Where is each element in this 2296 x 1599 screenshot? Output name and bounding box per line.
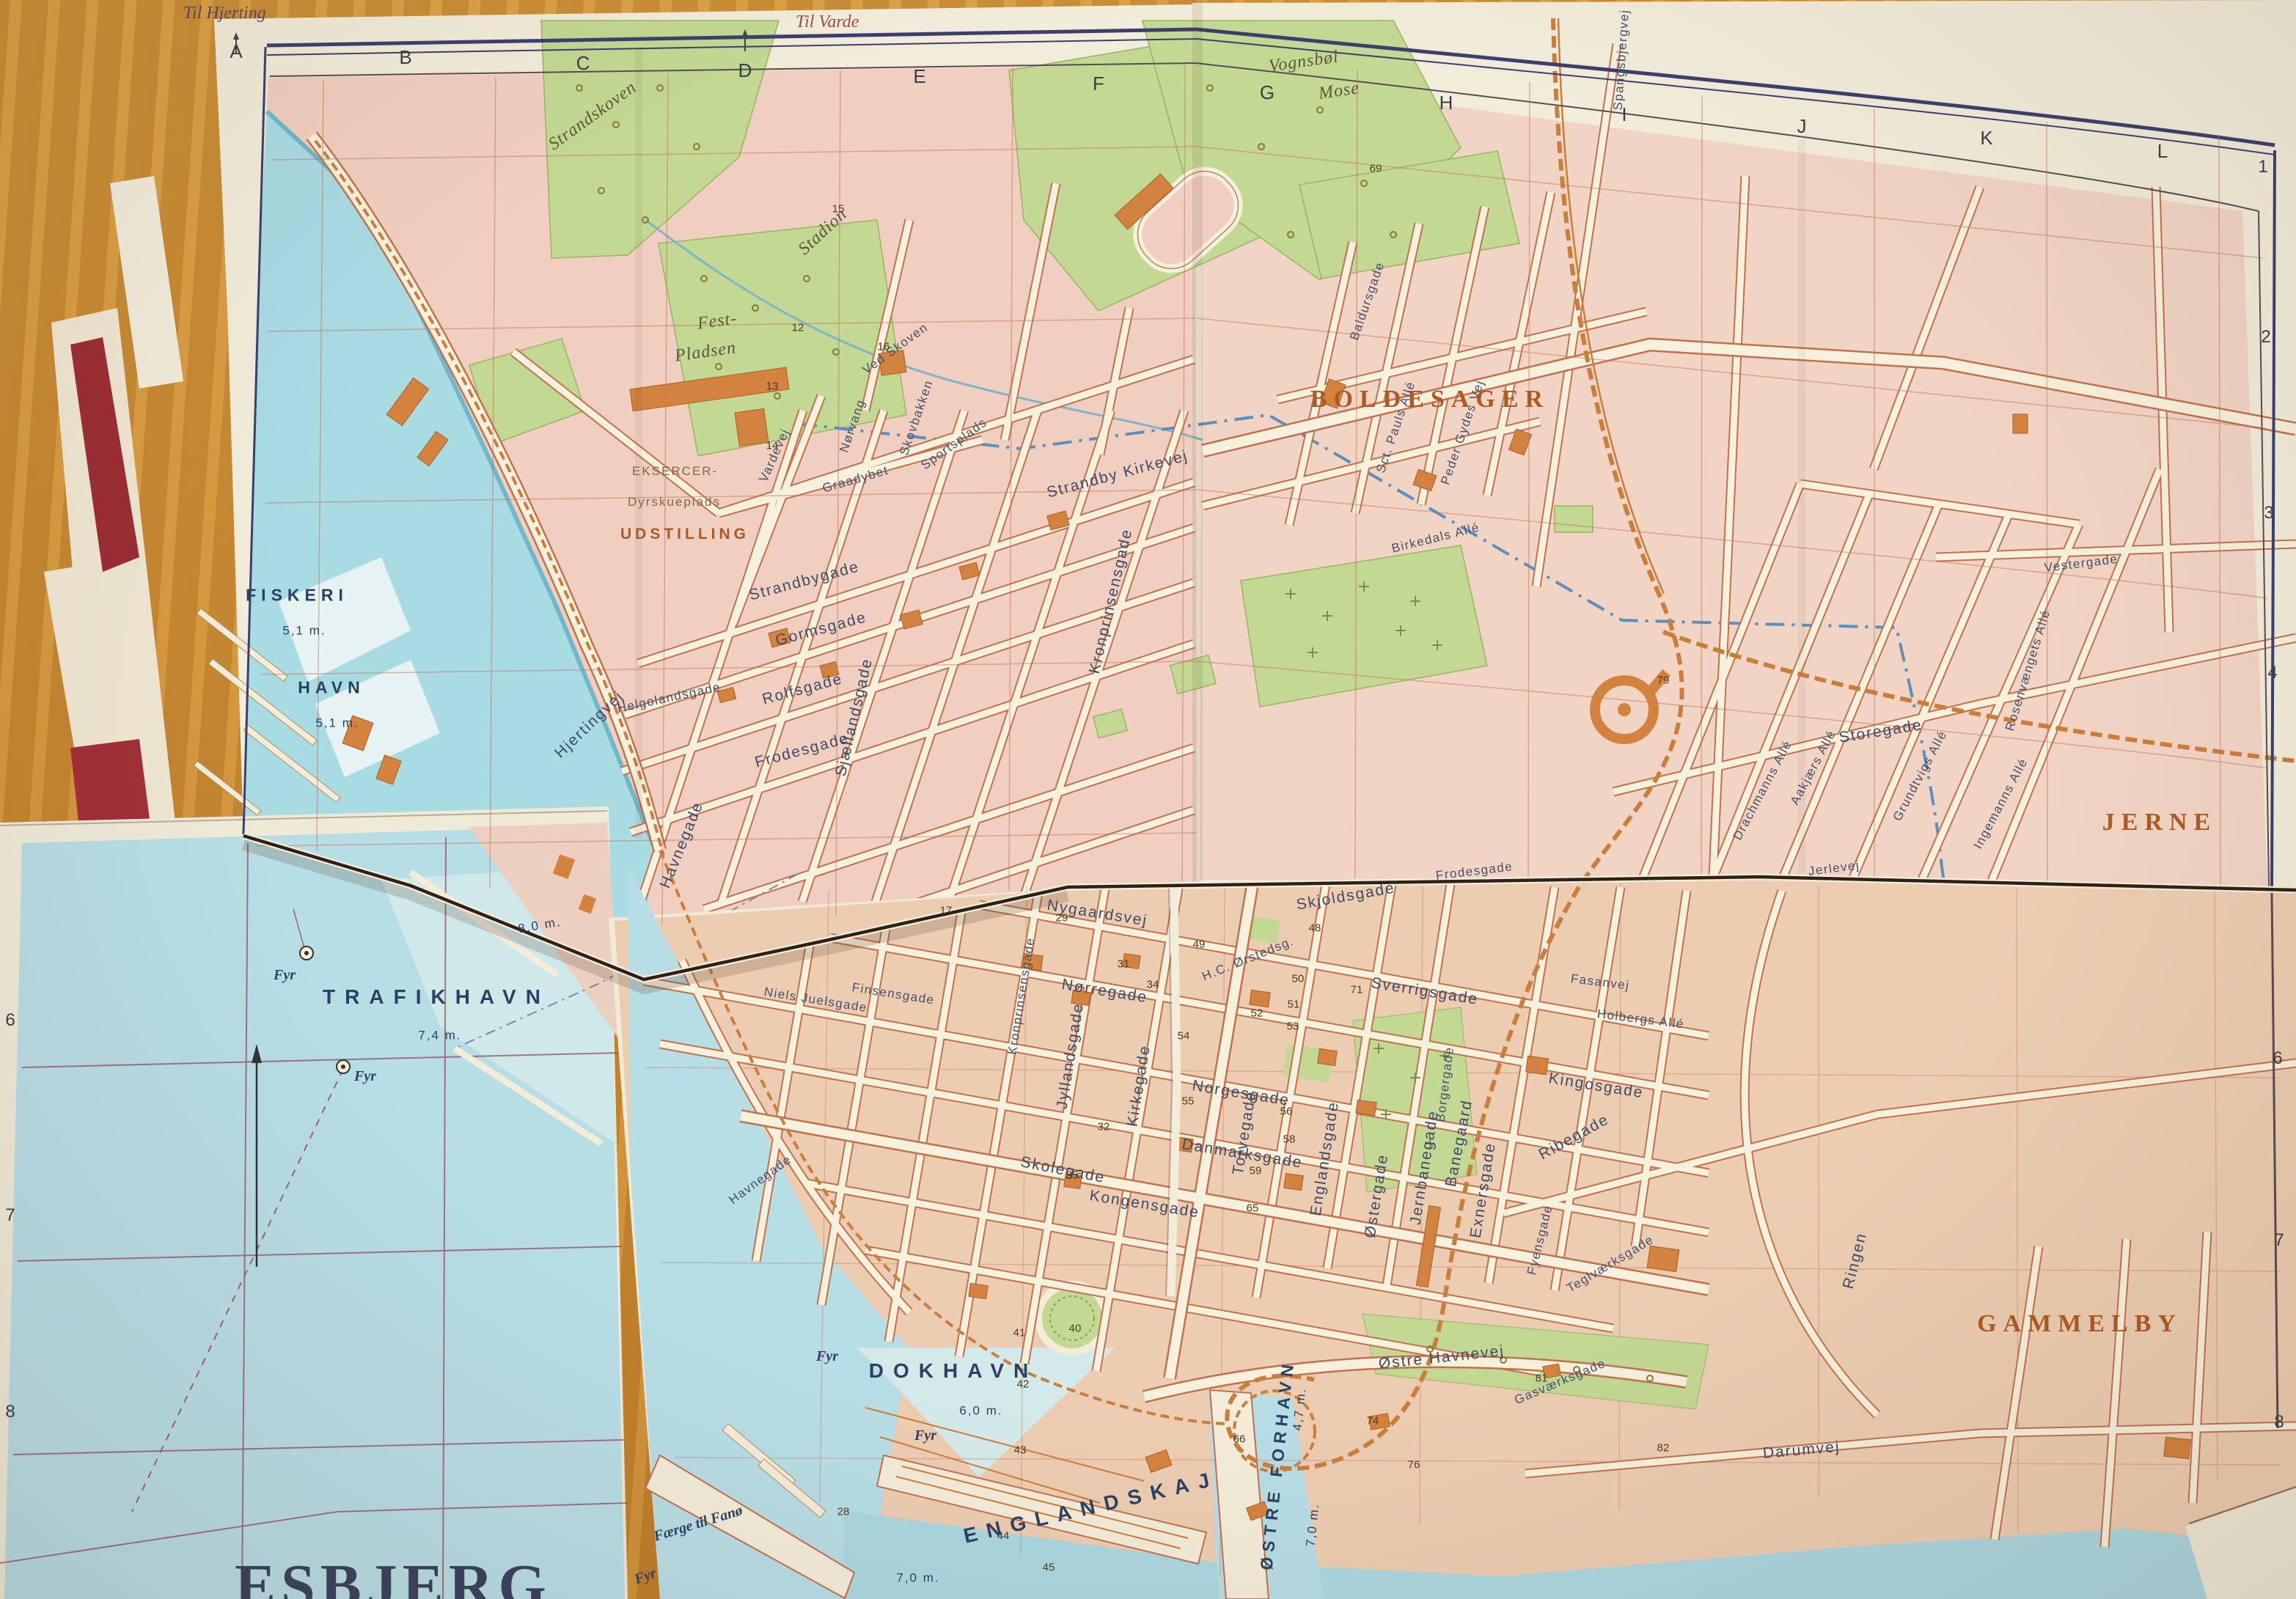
map-label: 7,4 m. <box>418 1029 461 1042</box>
map-label: 44 <box>997 1531 1010 1542</box>
map-label: 43 <box>1014 1445 1027 1456</box>
photo-of-folded-city-map: Til Hjerting Til Varde ESBJERG ABCDEFGHI… <box>0 0 2296 1599</box>
map-label: 6,0 m. <box>959 1405 1002 1417</box>
map-label: 29 <box>1056 913 1068 924</box>
map-label: 40 <box>1069 1323 1082 1334</box>
map-label: 28 <box>837 1507 850 1518</box>
map-label: UDSTILLING <box>620 526 749 542</box>
map-title: ESBJERG <box>235 1556 551 1599</box>
map-label: Fyr <box>914 1428 936 1443</box>
map-label: 79 <box>1657 675 1670 686</box>
map-label: 8 <box>2274 1414 2284 1431</box>
map-label: J <box>1797 117 1807 136</box>
map-label: 49 <box>1193 939 1206 950</box>
map-label: 82 <box>1657 1443 1670 1454</box>
map-label: 2 <box>2261 328 2270 346</box>
map-label: 65 <box>1247 1203 1259 1214</box>
map-label: 66 <box>1233 1434 1246 1445</box>
map-label: 6 <box>5 1012 15 1029</box>
map-label: 6 <box>2273 1050 2282 1067</box>
map-label: EKSERCER- <box>632 465 718 477</box>
map-label: JERNE <box>2102 810 2217 835</box>
map-label: TRAFIKHAVN <box>323 987 550 1007</box>
map-label: 50 <box>1292 974 1305 985</box>
map-label: L <box>2157 141 2168 161</box>
map-label: 1 <box>2258 158 2267 176</box>
map-label: HAVN <box>298 680 364 696</box>
map-label: 59 <box>1250 1166 1262 1177</box>
map-label: 7,0 m. <box>896 1572 939 1584</box>
map-label: 56 <box>1280 1106 1293 1117</box>
map-label: 76 <box>1408 1460 1420 1471</box>
map-label: 32 <box>1098 1122 1110 1133</box>
map-label: 48 <box>1309 923 1321 934</box>
map-label: E <box>913 67 925 86</box>
map-label: 53 <box>1287 1021 1299 1032</box>
map-label: FISKERI <box>246 587 348 604</box>
map-label: 35 <box>1066 1170 1079 1181</box>
map-label: 55 <box>1182 1096 1195 1107</box>
map-label: Fyr <box>274 968 296 982</box>
map-label: D <box>738 61 752 80</box>
margin-note-left: Til Hjerting <box>183 4 266 22</box>
map-label: BOLDESAGER <box>1310 387 1549 412</box>
map-label: 8 <box>5 1403 15 1421</box>
map-label: 13 <box>766 381 779 392</box>
map-label: 31 <box>1118 959 1130 970</box>
map-label: H <box>1439 93 1453 112</box>
map-label: GAMMELBY <box>1977 1312 2182 1337</box>
map-label: Dyrskueplads <box>628 496 721 508</box>
map-label: 41 <box>1013 1328 1026 1339</box>
map-label: 4 <box>2267 664 2277 682</box>
map-label: 52 <box>1251 1008 1263 1019</box>
map-label: 5,1 m. <box>315 717 359 729</box>
map-label: 15 <box>832 204 845 215</box>
margin-note-center: Til Varde <box>796 13 859 31</box>
map-label: 51 <box>1288 999 1300 1010</box>
map-label: 5,1 m. <box>282 625 326 637</box>
map-label: 81 <box>1536 1373 1548 1384</box>
map-label: 34 <box>1147 979 1159 990</box>
map-label: 45 <box>1043 1562 1055 1573</box>
map-label: 58 <box>1283 1134 1296 1145</box>
map-label: G <box>1260 83 1274 102</box>
map-label: 7 <box>5 1207 15 1224</box>
map-label: Fyr <box>816 1349 838 1364</box>
sheet-lower-right <box>609 865 2296 1599</box>
map-label: 42 <box>1017 1379 1030 1390</box>
map-label: Fyr <box>354 1069 376 1084</box>
map-artwork <box>0 0 2296 1599</box>
map-label: 3 <box>2264 504 2273 522</box>
map-label: 74 <box>1367 1416 1379 1427</box>
map-label: 14 <box>766 441 779 452</box>
map-label: 12 <box>792 323 804 334</box>
map-label: K <box>1980 128 1992 147</box>
map-label: C <box>576 54 590 73</box>
map-label: DOKHAVN <box>869 1361 1038 1381</box>
map-label: 17 <box>940 905 953 916</box>
map-label: F <box>1093 74 1104 93</box>
map-label: B <box>399 48 411 67</box>
map-label: A <box>230 42 242 61</box>
map-label: 69 <box>1370 163 1382 174</box>
map-label: 71 <box>1351 985 1363 996</box>
map-label: 16 <box>878 342 890 353</box>
map-label: 54 <box>1178 1031 1190 1042</box>
map-label: 7 <box>2274 1232 2284 1249</box>
